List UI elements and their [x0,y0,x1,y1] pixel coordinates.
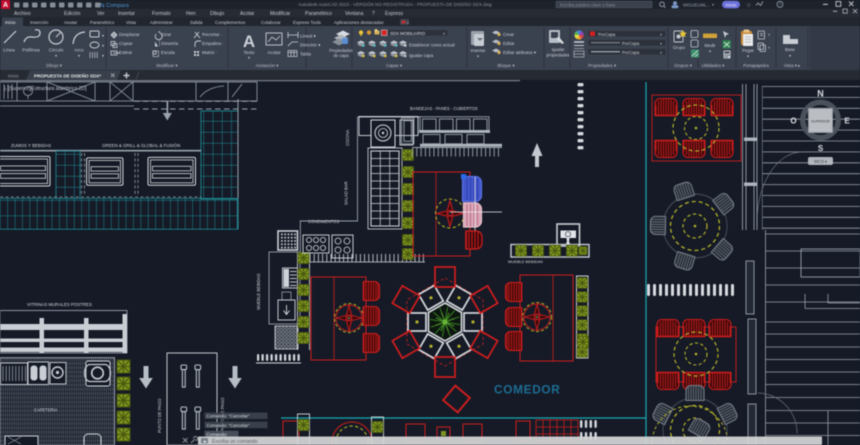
svg-text:PROPUESTA DE DISEÑO SDX*: PROPUESTA DE DISEÑO SDX* [34,73,101,79]
svg-text:▾: ▾ [102,53,104,58]
svg-text:Autodesk AutoCAD 2023 - VERSIÓ: Autodesk AutoCAD 2023 - VERSIÓN NO REGIS… [298,1,492,7]
svg-text:Desplazar: Desplazar [119,32,140,37]
svg-text:▾: ▾ [768,45,770,50]
svg-text:Directriz ▾: Directriz ▾ [300,43,321,48]
svg-text:SUPERIOR: SUPERIOR [811,120,830,124]
svg-text:Crear: Crear [503,32,515,37]
svg-text:VITRINAS MURALES POSTRES: VITRINAS MURALES POSTRES [27,302,92,307]
svg-text:Acotar: Acotar [240,11,255,17]
svg-text:ZUMOS Y BEBIDAS: ZUMOS Y BEBIDAS [11,143,51,148]
svg-text:Dibujo: Dibujo [210,11,224,17]
svg-text:Escala: Escala [161,50,175,55]
svg-text:Vista ▾ ▸: Vista ▾ ▸ [784,63,801,68]
svg-text:Ver: Ver [97,11,105,17]
svg-text:▾: ▾ [248,55,250,60]
svg-text:Paramétrico: Paramétrico [305,11,332,17]
svg-text:Escriba un comando: Escriba un comando [212,439,258,445]
svg-text:Formato: Formato [152,11,171,17]
svg-text:Acotar: Acotar [267,50,281,55]
svg-text:Inserción: Inserción [30,20,49,25]
svg-text:S: S [818,144,824,153]
svg-text:BANDEJAS - PANES - CUBIERTOS: BANDEJAS - PANES - CUBIERTOS [410,106,478,111]
svg-text:Iniciar: Iniciar [726,2,738,7]
svg-text:Propiedades ▾: Propiedades ▾ [588,63,616,68]
svg-text:▾: ▾ [55,53,57,58]
svg-text:Inicio: Inicio [8,74,19,79]
svg-text:Círculo: Círculo [49,48,64,53]
svg-text:propiedades: propiedades [546,53,569,58]
svg-text:CAFETERIA: CAFETERIA [34,408,58,413]
svg-text:▾: ▾ [768,32,770,37]
svg-text:▾: ▾ [102,33,104,38]
svg-text:CONDIMENTOS: CONDIMENTOS [308,219,340,224]
svg-text:Herr.: Herr. [186,11,197,17]
svg-text:MIGUELMIL...: MIGUELMIL... [683,2,710,7]
svg-text:Anotación ▾: Anotación ▾ [256,63,279,68]
svg-text:Simetría: Simetría [161,41,179,46]
svg-text:Vista: Vista [126,20,136,25]
svg-text:▾: ▾ [660,32,662,37]
svg-text:Girar: Girar [161,32,172,37]
svg-text:Copiar: Copiar [119,41,133,46]
svg-text:Modificar: Modificar [270,11,291,17]
svg-text:MUEBLE BEBIDAS: MUEBLE BEBIDAS [508,259,543,264]
svg-text:Comando: “Cancelar”: Comando: “Cancelar” [207,423,251,428]
svg-text:Línea: Línea [3,48,15,53]
svg-text:▾: ▾ [660,50,662,55]
svg-text:SDX MOBILIARIO: SDX MOBILIARIO [390,31,426,36]
svg-text:Polilínea: Polilínea [22,48,40,53]
svg-text:Complementos: Complementos [215,20,246,25]
svg-text:PorCapa: PorCapa [598,32,616,37]
svg-text:Insertar: Insertar [118,11,135,17]
svg-text:⇆ Compara: ⇆ Compara [100,2,130,9]
svg-text:Comando:: Comando: [207,432,228,437]
svg-text:Express Tools: Express Tools [293,20,322,25]
svg-text:Estirar: Estirar [119,50,133,55]
svg-text:A: A [243,32,255,51]
svg-text:Escriba palabra clave o frase: Escriba palabra clave o frase [560,2,616,7]
svg-text:[-][Superior][Estructura alámb: [-][Superior][Estructura alámbrica 2D] [4,86,87,92]
svg-text:Grupo: Grupo [673,45,686,50]
svg-text:Paramétrico: Paramétrico [90,20,115,25]
svg-text:Bloque ▾: Bloque ▾ [497,63,514,68]
svg-text:PUNTO DE PAGO: PUNTO DE PAGO [157,398,162,433]
svg-text:Matriz ·: Matriz · [202,50,217,55]
svg-text:Pegar: Pegar [742,48,754,53]
svg-text:▾: ▾ [747,54,749,59]
svg-text:Express: Express [385,11,404,17]
svg-text:Colaborar: Colaborar [261,20,281,25]
svg-text:Grupos ▾: Grupos ▾ [674,63,692,68]
svg-text:PorCapa: PorCapa [622,50,640,55]
svg-text:Lineal ▾: Lineal ▾ [300,34,317,39]
svg-text:Anotar: Anotar [64,20,78,25]
svg-text:▾: ▾ [477,54,479,59]
svg-text:Aplicaciones destacadas: Aplicaciones destacadas [334,20,384,25]
svg-text:►: ► [203,439,208,444]
svg-text:COCINA: COCINA [345,130,350,146]
svg-text:Base: Base [785,47,796,52]
svg-text:▾: ▾ [407,21,409,25]
svg-text:▾: ▾ [712,2,714,7]
svg-text:N: N [817,89,824,99]
svg-text:Salida: Salida [190,20,203,25]
svg-text:▾: ▾ [443,31,445,36]
svg-text:Edición: Edición [64,11,81,17]
svg-text:de capa: de capa [334,53,350,58]
svg-text:Insertar: Insertar [471,48,486,53]
svg-text:GREEN & GRILL & GLOBAL & FUSIÓ: GREEN & GRILL & GLOBAL & FUSIÓN [102,143,180,148]
svg-text:PorCapa: PorCapa [622,41,640,46]
svg-text:Editar atributos ▾: Editar atributos ▾ [503,50,536,55]
svg-text:Comando: “Cancelar”: Comando: “Cancelar” [207,414,251,419]
svg-text:Utilidades ▾: Utilidades ▾ [702,63,725,68]
svg-text:Igualar: Igualar [552,47,565,52]
svg-text:Modificar ▾: Modificar ▾ [156,63,177,68]
svg-text:Arco: Arco [74,48,84,53]
svg-text:Dibujo ▾: Dibujo ▾ [46,63,62,68]
svg-text:?: ? [372,11,375,17]
svg-text:Empalme ·: Empalme · [202,41,224,46]
svg-text:▾: ▾ [709,49,711,54]
svg-text:WCS ▾: WCS ▾ [814,159,827,164]
svg-text:Tabla: Tabla [300,52,311,57]
svg-text:SALAD BAR: SALAD BAR [344,181,349,205]
svg-text:▾: ▾ [102,43,104,48]
svg-text:▾: ▾ [78,53,80,58]
svg-text:Editar: Editar [503,41,515,46]
svg-text:Administrar: Administrar [150,20,173,25]
svg-text:Igualar capa: Igualar capa [409,53,434,58]
svg-text:E: E [844,117,850,126]
svg-text:☆: ☆ [746,2,751,9]
svg-text:▾: ▾ [660,41,662,46]
svg-text:O: O [790,117,796,126]
svg-text:Archivo: Archivo [14,11,31,17]
svg-text:Establecer como actual: Establecer como actual [409,43,455,48]
svg-text:Inicio: Inicio [5,20,16,25]
svg-text:A: A [3,2,8,9]
svg-text:▾: ▾ [789,53,791,58]
svg-text:Medir: Medir [705,43,717,48]
svg-text:Capas ▾: Capas ▾ [386,63,402,68]
svg-text:Portapapeles: Portapapeles [743,63,770,68]
svg-text:Recortar ·: Recortar · [202,32,222,37]
svg-text:COMEDOR: COMEDOR [494,383,561,397]
svg-text:Ventana: Ventana [345,11,364,17]
svg-text:MUEBLE BEBIDAS: MUEBLE BEBIDAS [256,273,261,310]
